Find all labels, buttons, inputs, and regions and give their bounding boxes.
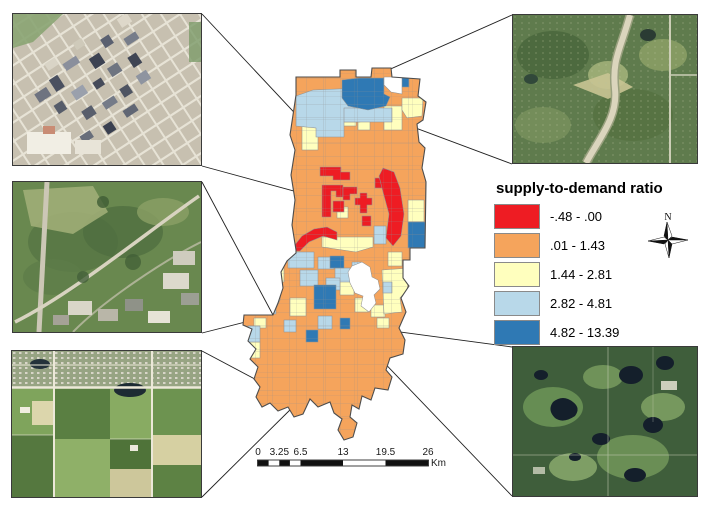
pond bbox=[30, 359, 50, 369]
rooftop bbox=[75, 140, 101, 154]
farmstead bbox=[20, 407, 30, 413]
legend-swatch-blue bbox=[494, 320, 540, 345]
legend-label: -.48 - .00 bbox=[550, 209, 602, 224]
scale-tick-label: 26 bbox=[422, 447, 434, 458]
legend-swatch-red bbox=[494, 204, 540, 229]
scale-tick-label: 19.5 bbox=[376, 447, 396, 458]
inset-downtown-aerial bbox=[12, 13, 202, 166]
legend-swatch-orange bbox=[494, 233, 540, 258]
legend-swatch-lightblue bbox=[494, 291, 540, 316]
inset-farmland-aerial bbox=[11, 350, 202, 498]
legend-label: .01 - 1.43 bbox=[550, 238, 605, 253]
scale-unit-label: Km bbox=[431, 458, 446, 469]
legend-title: supply-to-demand ratio bbox=[496, 180, 709, 197]
legend-swatch-yellow bbox=[494, 262, 540, 287]
leader-park bbox=[202, 182, 273, 333]
scale-tick-label: 0 bbox=[255, 447, 261, 458]
farmstead bbox=[130, 445, 138, 451]
scale-tick-label: 6.5 bbox=[294, 447, 308, 458]
tract-boundary-grid-2 bbox=[240, 64, 430, 444]
legend: supply-to-demand ratio -.48 - .00 .01 - … bbox=[494, 180, 709, 349]
scale-bar: 0 3.25 6.5 13 19.5 26 Km bbox=[255, 447, 446, 469]
inset-lakes-aerial bbox=[512, 346, 698, 497]
clearing bbox=[533, 467, 545, 474]
choropleth-map bbox=[240, 64, 430, 444]
large-rooftop bbox=[27, 132, 71, 154]
inset-park-aerial bbox=[12, 181, 202, 333]
legend-row: 2.82 - 4.81 bbox=[494, 291, 709, 316]
lakes-aerial-art bbox=[513, 347, 697, 496]
legend-label: 1.44 - 2.81 bbox=[550, 267, 612, 282]
legend-row: 1.44 - 2.81 bbox=[494, 262, 709, 287]
scale-tick-label: 13 bbox=[337, 447, 349, 458]
legend-row: 4.82 - 13.39 bbox=[494, 320, 709, 345]
legend-label: 4.82 - 13.39 bbox=[550, 325, 619, 340]
suburb-aerial-art bbox=[513, 15, 697, 163]
pond bbox=[524, 74, 538, 84]
legend-row: -.48 - .00 bbox=[494, 204, 709, 229]
downtown-aerial-art bbox=[13, 14, 201, 165]
suburb-band bbox=[12, 351, 201, 387]
scale-tick-label: 3.25 bbox=[270, 447, 290, 458]
green-strip bbox=[189, 22, 201, 62]
legend-row: .01 - 1.43 bbox=[494, 233, 709, 258]
clearing bbox=[661, 381, 677, 390]
pond bbox=[114, 383, 146, 397]
inset-suburb-aerial bbox=[512, 14, 698, 164]
fields bbox=[12, 389, 201, 497]
pond bbox=[640, 29, 656, 41]
red-roof bbox=[43, 126, 55, 134]
farmland-aerial-art bbox=[12, 351, 201, 497]
park-aerial-art bbox=[13, 182, 201, 332]
legend-label: 2.82 - 4.81 bbox=[550, 296, 612, 311]
figure-canvas: N 0 3.25 6.5 13 19.5 26 Km bbox=[0, 0, 720, 508]
